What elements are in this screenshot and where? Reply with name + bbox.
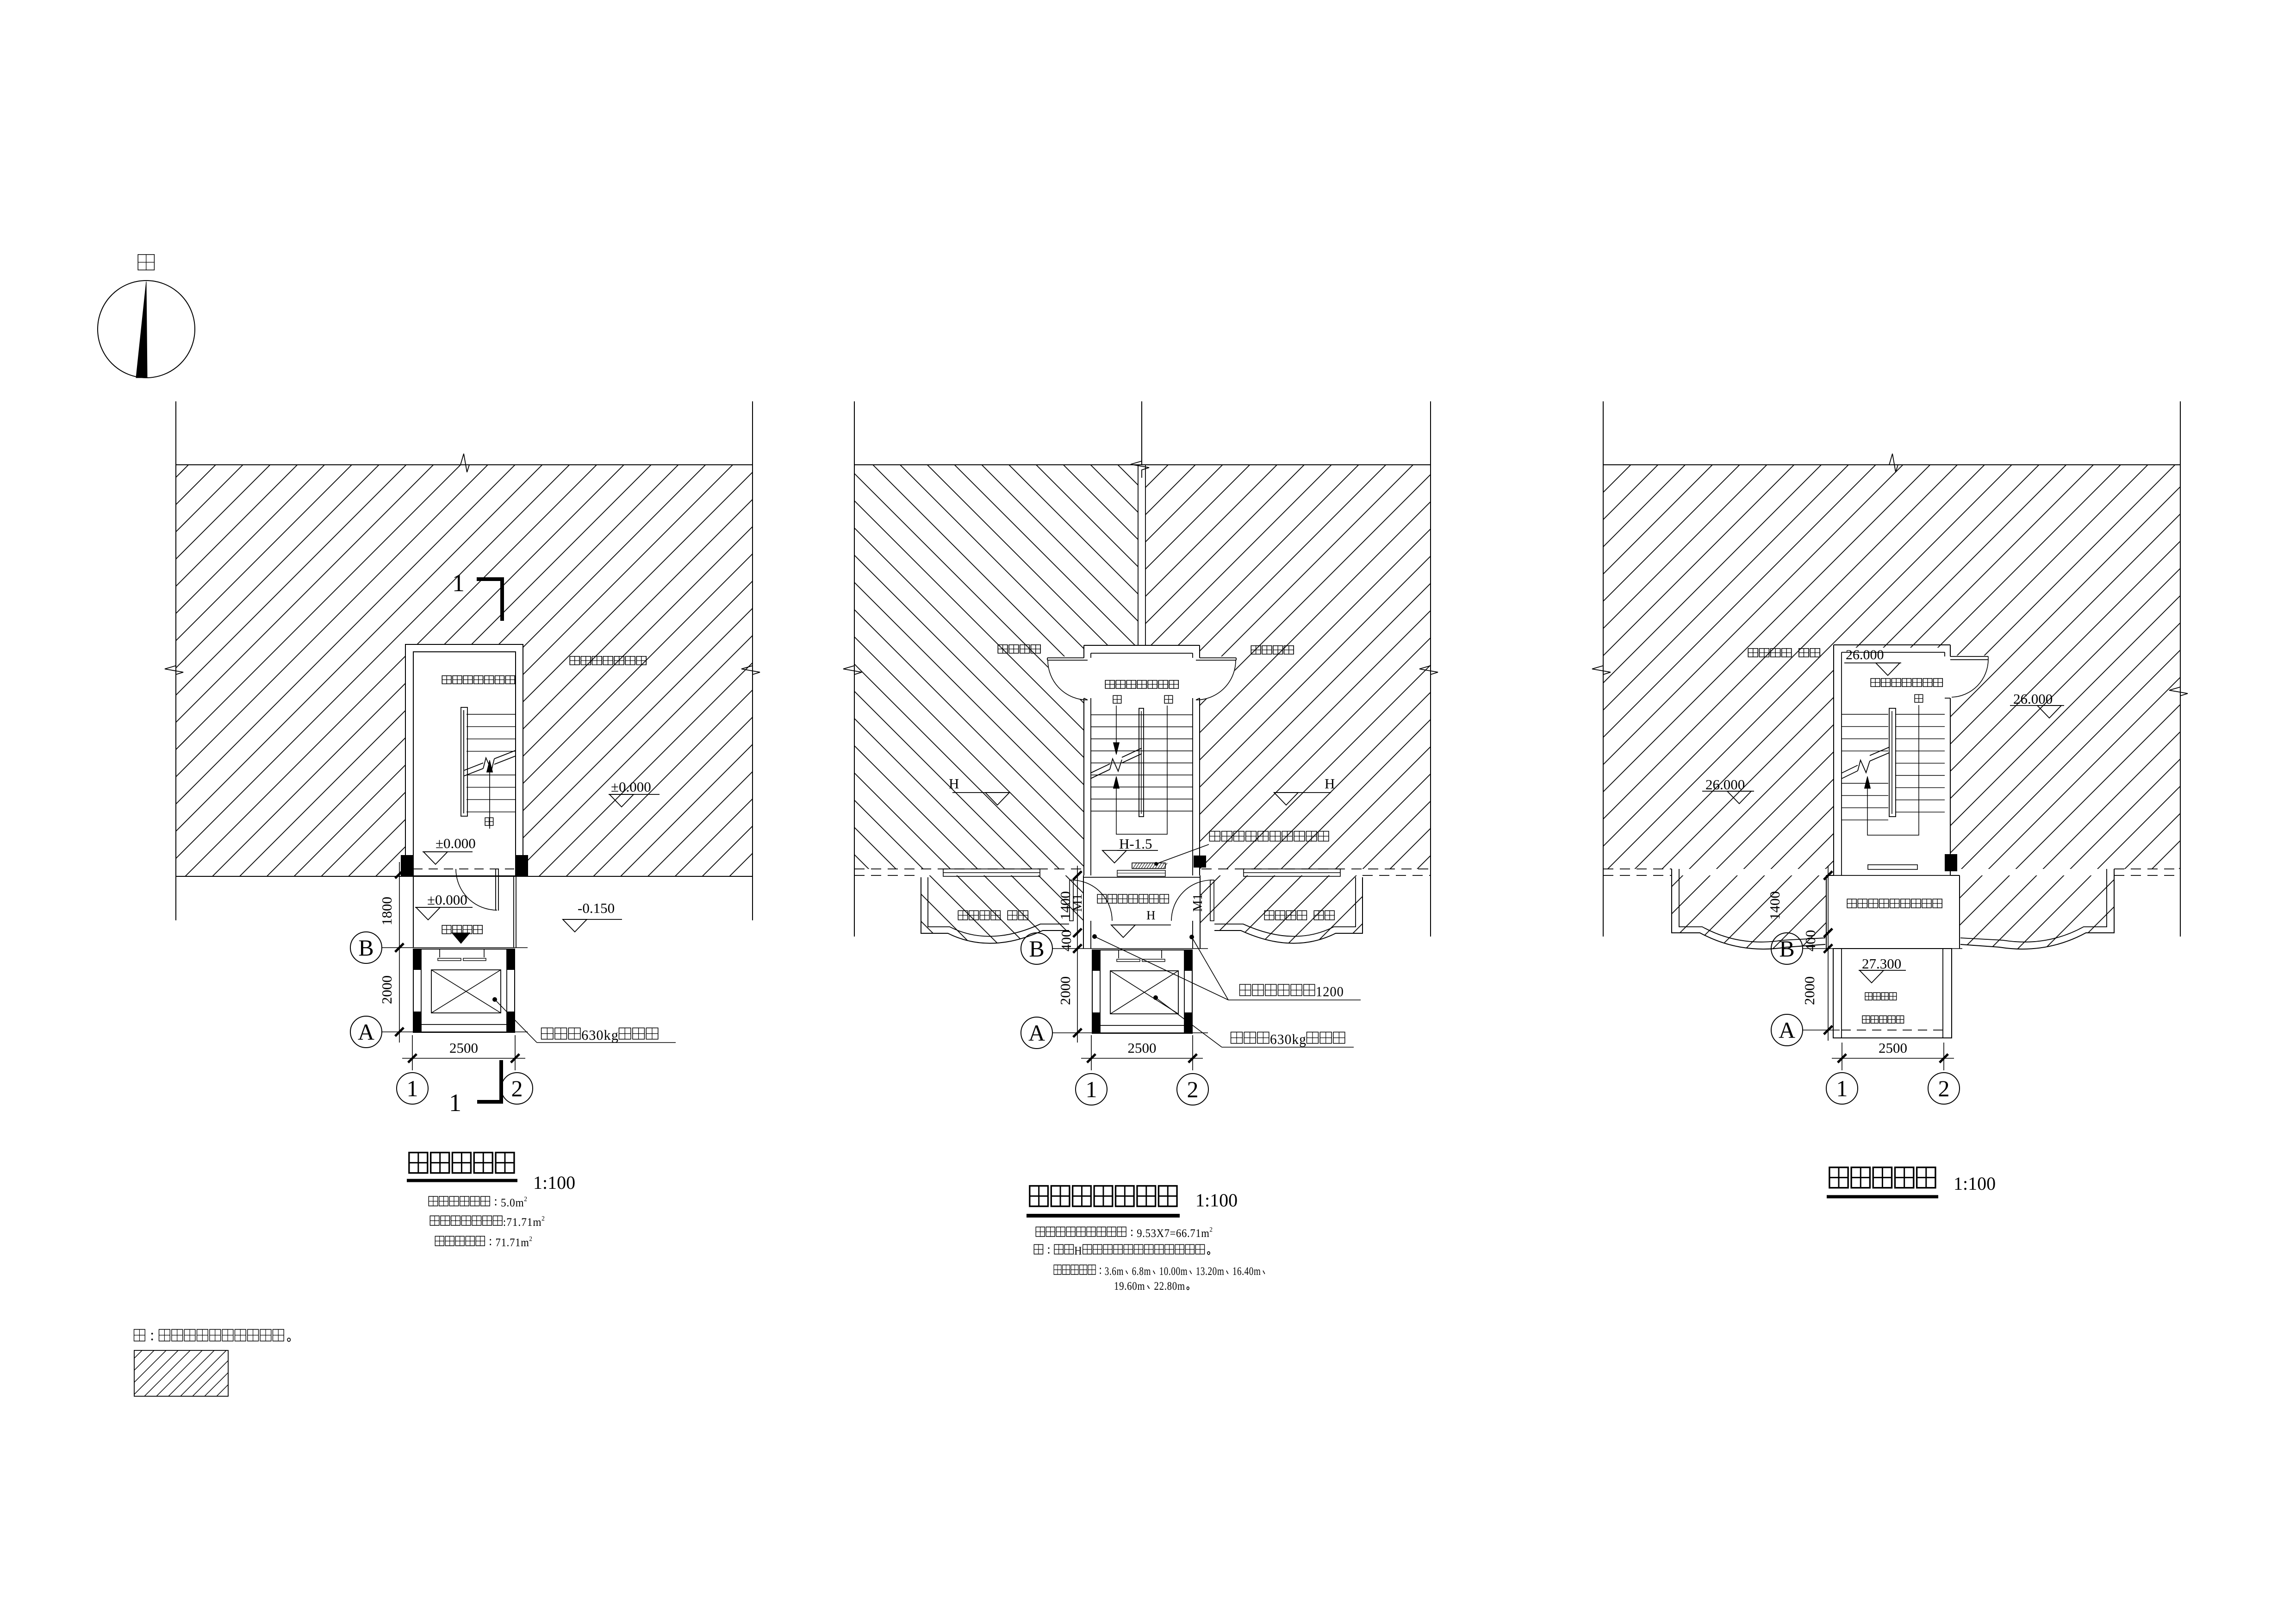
svg-text:B: B [1029,936,1044,962]
svg-text::71.71m: :71.71m [503,1216,541,1229]
svg-text:13.20m: 13.20m [1196,1264,1224,1277]
svg-text:A: A [358,1019,374,1045]
svg-text:9.53X7=66.71m: 9.53X7=66.71m [1137,1227,1209,1240]
svg-text:A: A [1028,1020,1045,1046]
svg-text:26.000: 26.000 [2013,691,2053,707]
svg-text:1: 1 [1836,1075,1848,1101]
svg-text:1: 1 [1086,1076,1097,1102]
svg-text:±0.000: ±0.000 [611,779,651,795]
svg-text:M1: M1 [1191,894,1205,912]
svg-text:A: A [1779,1017,1795,1043]
svg-text:2: 2 [1938,1075,1950,1101]
svg-text:2: 2 [1209,1226,1213,1234]
svg-text:26.000: 26.000 [1705,776,1745,793]
svg-text:26.000: 26.000 [1846,647,1884,662]
svg-text:22.80m: 22.80m [1154,1280,1185,1293]
svg-text:B: B [1779,936,1794,962]
svg-text:6.8m: 6.8m [1132,1264,1151,1277]
svg-text:630kg: 630kg [581,1027,618,1043]
svg-text:400: 400 [1802,930,1818,952]
svg-text:1800: 1800 [379,897,395,925]
svg-text:H: H [1325,775,1335,792]
svg-text:1: 1 [452,569,465,597]
svg-text:±0.000: ±0.000 [427,892,467,908]
svg-text:71.71m: 71.71m [495,1236,529,1249]
svg-text:B: B [358,935,373,961]
svg-text:2000: 2000 [1057,976,1073,1005]
svg-text:2: 2 [511,1075,523,1101]
svg-text:H-1.5: H-1.5 [1119,836,1152,852]
svg-text:-0.150: -0.150 [578,900,615,916]
svg-text:H: H [1074,1244,1082,1257]
svg-text:1:100: 1:100 [1195,1190,1238,1211]
svg-text:1: 1 [449,1089,461,1117]
svg-text:2000: 2000 [1801,976,1817,1005]
svg-text:2: 2 [529,1236,532,1243]
svg-text:3.6m: 3.6m [1105,1264,1124,1277]
svg-text:H: H [1146,908,1156,922]
svg-text:2500: 2500 [449,1040,478,1056]
svg-text:1: 1 [407,1075,418,1101]
svg-text:19.60m: 19.60m [1114,1280,1145,1293]
svg-text:2500: 2500 [1879,1040,1907,1056]
svg-text:2: 2 [1187,1076,1199,1102]
svg-text:1:100: 1:100 [1954,1173,1996,1194]
svg-text:1400: 1400 [1767,891,1783,920]
svg-text:27.300: 27.300 [1862,956,1901,972]
svg-text:H: H [949,775,959,792]
svg-text:2500: 2500 [1128,1040,1157,1056]
svg-text:1:100: 1:100 [533,1172,575,1193]
svg-text:±0.000: ±0.000 [436,835,476,851]
svg-text:630kg: 630kg [1270,1032,1306,1047]
svg-text:400: 400 [1058,930,1074,952]
svg-text:2: 2 [541,1215,545,1223]
svg-text:1400: 1400 [1057,891,1073,920]
svg-text:2: 2 [524,1195,527,1203]
svg-text:16.40m: 16.40m [1232,1264,1261,1277]
svg-text:5.0m: 5.0m [501,1196,524,1209]
svg-text:1200: 1200 [1316,984,1344,999]
svg-text:10.00m: 10.00m [1159,1264,1188,1277]
svg-text:2000: 2000 [379,975,395,1004]
